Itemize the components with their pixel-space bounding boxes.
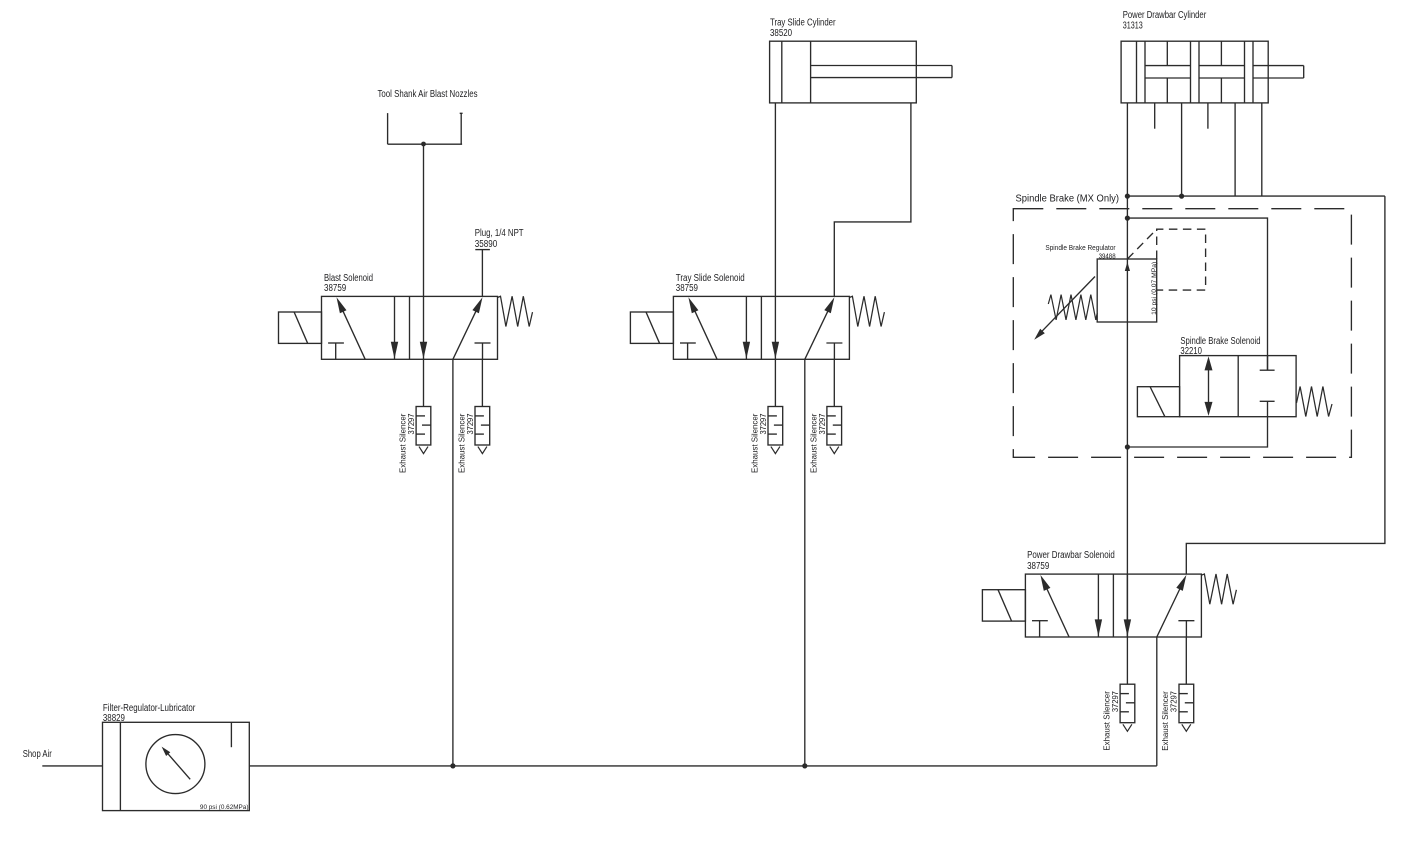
svg-text:Shop Air: Shop Air	[23, 749, 53, 760]
svg-text:31313: 31313	[1123, 20, 1143, 31]
svg-text:38520: 38520	[770, 28, 792, 39]
svg-text:37297: 37297	[818, 413, 827, 435]
svg-text:90 psi (0.62MPa): 90 psi (0.62MPa)	[200, 804, 249, 811]
svg-text:37297: 37297	[1170, 691, 1179, 713]
svg-text:37297: 37297	[407, 413, 416, 435]
svg-text:Spindle Brake (MX Only): Spindle Brake (MX Only)	[1016, 194, 1120, 205]
svg-text:38759: 38759	[676, 283, 699, 294]
svg-text:Power Drawbar Cylinder: Power Drawbar Cylinder	[1123, 10, 1207, 21]
svg-text:37297: 37297	[466, 413, 475, 435]
svg-text:10 psi (0.07 MPa): 10 psi (0.07 MPa)	[1151, 262, 1158, 315]
svg-text:Plug, 1/4 NPT: Plug, 1/4 NPT	[475, 228, 524, 239]
svg-text:Power Drawbar Solenoid: Power Drawbar Solenoid	[1027, 550, 1115, 561]
svg-text:38759: 38759	[1027, 561, 1050, 572]
svg-text:Tray Slide Cylinder: Tray Slide Cylinder	[770, 17, 836, 28]
svg-text:37297: 37297	[759, 413, 768, 435]
svg-text:38759: 38759	[324, 283, 347, 294]
svg-text:Tool Shank Air Blast Nozzles: Tool Shank Air Blast Nozzles	[378, 89, 478, 100]
svg-text:37297: 37297	[1111, 691, 1120, 713]
svg-text:Spindle Brake Regulator: Spindle Brake Regulator	[1045, 245, 1116, 252]
svg-text:35890: 35890	[475, 239, 498, 250]
